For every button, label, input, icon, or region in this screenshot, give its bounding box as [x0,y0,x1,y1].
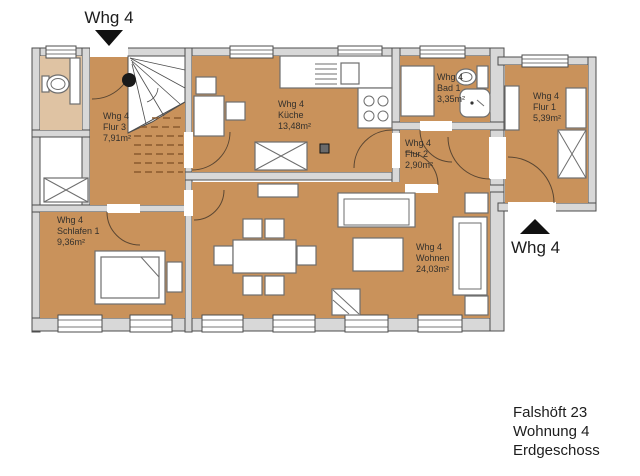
svg-text:Whg 4: Whg 4 [103,111,129,121]
toilet-tank-icon [477,66,488,88]
kitchen-counter [358,88,392,128]
wardrobe [255,142,307,170]
svg-text:Schlafen 1: Schlafen 1 [57,226,100,236]
svg-text:Küche: Küche [278,110,304,120]
dining-table [233,240,296,273]
chair [243,219,262,238]
svg-text:13,48m²: 13,48m² [278,121,311,131]
chair [196,77,216,94]
side-table [465,193,488,213]
floorplan-page: Whg 4 Flur 3 7,91m² Whg 4 Küche 13,48m² … [0,0,640,476]
sideboard [258,184,298,197]
chair [265,276,284,295]
kitchen-table [194,96,224,136]
coffee-table [353,238,403,271]
window [418,315,462,332]
sofa [338,193,415,227]
svg-text:Wohnen: Wohnen [416,253,449,263]
svg-text:Whg 4: Whg 4 [437,72,463,82]
chair [214,246,233,265]
chair [243,276,262,295]
svg-text:Flur 1: Flur 1 [533,102,556,112]
window [230,46,273,58]
apartment-text: Wohnung 4 [513,423,589,440]
shelf [566,88,586,128]
svg-text:Whg 4: Whg 4 [57,215,83,225]
window [522,55,568,67]
bed [95,251,165,304]
address-text: Falshöft 23 [513,404,587,421]
kitchen-counter [280,56,392,88]
tv-stand [332,289,360,315]
window [46,46,76,58]
svg-text:2,90m²: 2,90m² [405,160,433,170]
svg-text:Whg 4: Whg 4 [278,99,304,109]
washing-machine-icon [401,66,434,116]
window [130,315,172,332]
dishwasher-icon [341,63,359,84]
nightstand [167,262,182,292]
window [345,315,388,332]
window [58,315,102,332]
svg-text:Whg 4: Whg 4 [84,8,133,27]
title-block: Falshöft 23 Wohnung 4 Erdgeschoss [513,404,600,459]
toilet-icon [47,75,69,93]
window [202,315,243,332]
svg-text:24,03m²: 24,03m² [416,264,449,274]
column [320,144,329,153]
svg-text:Bad 1: Bad 1 [437,83,461,93]
floor-text: Erdgeschoss [513,442,600,459]
svg-text:7,91m²: 7,91m² [103,133,131,143]
svg-text:Flur 2: Flur 2 [405,149,428,159]
smoke-detector-icon [122,73,136,87]
side-table [465,296,488,315]
partition [70,58,80,104]
shelf [505,86,519,130]
wardrobe [558,130,586,178]
window [420,46,465,58]
svg-text:Whg 4: Whg 4 [533,91,559,101]
svg-text:9,36m²: 9,36m² [57,237,85,247]
wardrobe [44,178,88,202]
floorplan-drawing: Whg 4 Flur 3 7,91m² Whg 4 Küche 13,48m² … [0,0,640,476]
window [273,315,315,332]
svg-text:Whg 4: Whg 4 [405,138,431,148]
sofa-long [453,217,487,295]
svg-text:Whg 4: Whg 4 [511,238,560,257]
svg-text:Whg 4: Whg 4 [416,242,442,252]
svg-text:3,35m²: 3,35m² [437,94,465,104]
chair [297,246,316,265]
chair [265,219,284,238]
svg-text:Flur 3: Flur 3 [103,122,126,132]
svg-text:5,39m²: 5,39m² [533,113,561,123]
chair [226,102,245,120]
